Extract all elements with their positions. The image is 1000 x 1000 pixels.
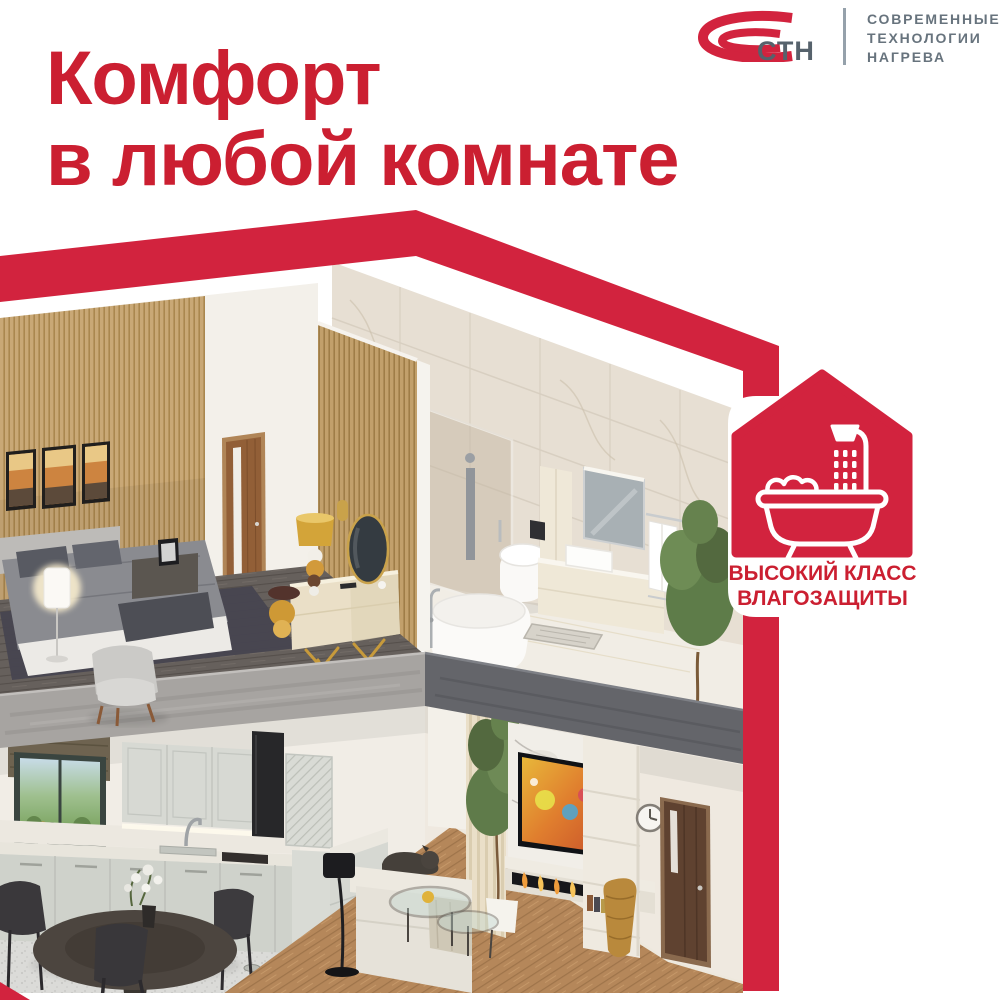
banner: Комфорт в любой комнате СТН СОВРЕМЕННЫЕ …: [0, 0, 1000, 1000]
badge-caption: ВЫСОКИЙ КЛАСС ВЛАГОЗАЩИТЫ: [700, 561, 945, 611]
badge-caption-line-1: ВЫСОКИЙ КЛАСС: [700, 561, 945, 586]
logo-tagline-line-3: НАГРЕВА: [867, 48, 1000, 67]
pillar: [428, 702, 472, 830]
badge-caption-line-2: ВЛАГОЗАЩИТЫ: [700, 586, 945, 611]
cooker-hood: [252, 731, 284, 838]
logo-abbr: СТН: [757, 36, 815, 67]
logo-tagline-line-1: СОВРЕМЕННЫЕ: [867, 10, 1000, 29]
title-line-2: в любой комнате: [46, 119, 679, 200]
logo-tagline: СОВРЕМЕННЫЕ ТЕХНОЛОГИИ НАГРЕВА: [867, 10, 1000, 67]
upper-cabinets: [122, 742, 258, 830]
wall-sconce: [337, 500, 348, 521]
paintings: [6, 441, 110, 511]
page-title: Комфорт в любой комнате: [46, 38, 679, 200]
logo-tagline-line-2: ТЕХНОЛОГИИ: [867, 29, 1000, 48]
lattice-cabinet: [286, 754, 332, 848]
living-door: [660, 797, 711, 968]
title-line-1: Комфорт: [46, 38, 679, 119]
logo-divider: [843, 8, 846, 65]
wall-clock: [637, 805, 663, 831]
bedroom: [0, 283, 430, 695]
